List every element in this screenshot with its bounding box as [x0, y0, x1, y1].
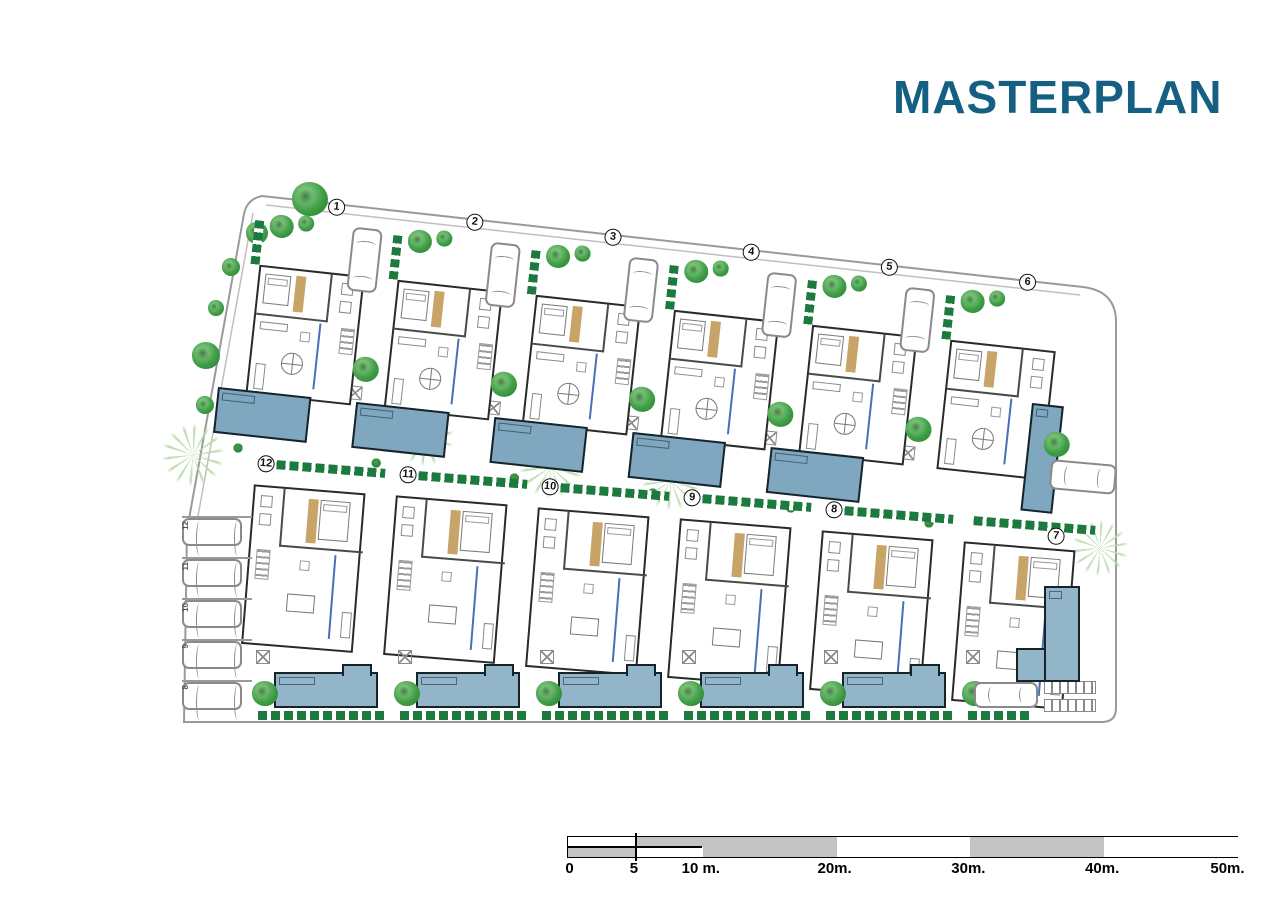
bath-fixture-icon: [753, 346, 766, 359]
dining-table-icon: [418, 367, 442, 391]
sofa-icon: [253, 363, 266, 390]
interior-wall: [326, 274, 333, 322]
hedge: [405, 471, 527, 490]
dining-table-icon: [971, 427, 995, 451]
terrace-grid-icon: [540, 650, 554, 664]
tree-icon: [536, 681, 562, 706]
plot-number-badge: 7: [1047, 527, 1065, 545]
terrace-grid-icon: [398, 650, 412, 664]
tree-icon: [407, 229, 433, 254]
bath-fixture-icon: [615, 331, 628, 344]
accent-wall: [312, 324, 321, 390]
bath-fixture-icon: [543, 536, 556, 549]
bath-fixture-icon: [544, 518, 557, 531]
scale-label: 50m.: [1210, 860, 1244, 877]
bath-fixture-icon: [1030, 376, 1043, 389]
furniture-icon: [990, 407, 1001, 418]
bed-icon: [677, 318, 706, 351]
dining-table-icon: [286, 593, 315, 613]
hedge: [826, 711, 952, 720]
tree-icon: [394, 681, 420, 706]
villa-plot: 12: [250, 458, 392, 722]
interior-wall: [279, 545, 363, 554]
car-icon: [182, 641, 242, 669]
tree-icon: [196, 396, 214, 414]
scale-bar-body: [567, 836, 1238, 858]
plot-number-badge: 9: [683, 489, 701, 507]
bed-icon: [401, 288, 430, 321]
accent-wall: [451, 339, 460, 405]
parking-bay-number: 9: [181, 644, 190, 648]
sofa-icon: [668, 408, 681, 435]
wardrobe-icon: [984, 351, 998, 388]
bottom-villa-row: 12 11: [250, 458, 1105, 722]
kitchen-counter-icon: [812, 381, 841, 392]
hedge: [547, 482, 669, 501]
stairs-icon: [891, 388, 908, 415]
sofa-icon: [624, 635, 636, 662]
accent-wall: [865, 384, 874, 450]
wardrobe-icon: [707, 321, 721, 358]
interior-wall: [421, 556, 505, 565]
interior-wall: [602, 305, 609, 353]
stairs-icon: [476, 343, 493, 370]
car-icon: [899, 287, 936, 354]
tree-icon: [208, 300, 224, 316]
stairs-icon: [964, 606, 980, 637]
bed-icon: [460, 511, 493, 553]
pergola-icon: [1044, 681, 1096, 694]
furniture-icon: [576, 362, 587, 373]
scale-label: 30m.: [951, 860, 985, 877]
stairs-icon: [822, 594, 838, 625]
tree-icon: [252, 681, 278, 706]
sofa-icon: [482, 623, 494, 650]
car-icon: [761, 272, 798, 339]
tree-icon: [850, 275, 868, 293]
terrace-grid-icon: [966, 650, 980, 664]
pool: [558, 672, 662, 708]
accent-wall: [727, 369, 736, 435]
interior-wall: [989, 546, 996, 604]
dining-table-icon: [428, 605, 457, 625]
bed-icon: [953, 348, 982, 381]
bed-icon: [539, 303, 568, 336]
tree-icon: [678, 681, 704, 706]
car-icon: [484, 242, 521, 309]
bed-icon: [886, 545, 919, 587]
bed-icon: [815, 333, 844, 366]
palm-tree-icon: [162, 424, 224, 486]
interior-wall: [847, 534, 854, 592]
accent-wall: [470, 566, 479, 650]
wardrobe-icon: [845, 336, 859, 373]
masterplan-page: MASTERPLAN 1: [0, 0, 1280, 904]
pool: [1044, 586, 1080, 682]
dining-table-icon: [712, 628, 741, 648]
interior-wall: [421, 500, 428, 558]
terrace-grid-icon: [824, 650, 838, 664]
accent-wall: [1003, 399, 1012, 465]
pool: [274, 672, 378, 708]
scale-label: 10 m.: [682, 860, 720, 877]
wardrobe-icon: [293, 276, 307, 313]
furniture-icon: [299, 560, 310, 571]
bed-icon: [744, 534, 777, 576]
tree-icon: [269, 214, 295, 239]
car-icon: [182, 518, 242, 546]
plot-number-badge: 11: [399, 466, 417, 484]
kitchen-counter-icon: [536, 351, 565, 362]
dining-table-icon: [556, 382, 580, 406]
wardrobe-icon: [431, 291, 445, 328]
stairs-icon: [396, 560, 412, 591]
scale-label: 20m.: [817, 860, 851, 877]
hedge: [689, 493, 811, 512]
bath-fixture-icon: [401, 524, 414, 537]
pool: [700, 672, 804, 708]
tree-icon: [683, 259, 709, 284]
interior-wall: [878, 335, 885, 383]
interior-wall: [464, 290, 471, 338]
villa-plot: 9: [676, 458, 818, 722]
terrace-grid-icon: [682, 650, 696, 664]
furniture-icon: [852, 392, 863, 403]
parking-bay-number: 11: [181, 562, 190, 570]
hedge: [973, 516, 1095, 535]
furniture-icon: [583, 583, 594, 594]
villa-plot: 8: [818, 458, 960, 722]
parking-bay-number: 8: [181, 685, 190, 689]
plot-number-badge: 10: [541, 477, 559, 495]
stairs-icon: [538, 572, 554, 603]
interior-wall: [705, 579, 789, 588]
car-icon: [623, 257, 660, 324]
terrace-grid-icon: [256, 650, 270, 664]
interior-wall: [279, 489, 286, 547]
parking-bay: 11: [182, 557, 252, 600]
bath-fixture-icon: [260, 495, 273, 508]
interior-wall: [1017, 350, 1024, 398]
tilted-plot-content: 12: [234, 458, 392, 669]
stairs-icon: [254, 549, 270, 580]
dining-table-icon: [854, 639, 883, 659]
scale-bar: 0510 m.20m.30m.40m.50m.: [565, 833, 1241, 881]
scale-segment: [836, 837, 971, 857]
sofa-icon: [806, 423, 819, 450]
accent-wall: [589, 354, 598, 420]
parking-bay: 9: [182, 639, 252, 682]
bath-fixture-icon: [969, 570, 982, 583]
bath-fixture-icon: [686, 529, 699, 542]
stairs-icon: [680, 583, 696, 614]
parking-bay-number: 10: [181, 603, 190, 612]
kitchen-counter-icon: [398, 336, 427, 347]
car-icon: [1049, 459, 1117, 495]
tree-icon: [574, 245, 592, 263]
hedge: [831, 505, 953, 524]
bath-fixture-icon: [685, 547, 698, 560]
furniture-icon: [438, 347, 449, 358]
kitchen-counter-icon: [260, 321, 289, 332]
interior-wall: [563, 567, 647, 576]
bath-fixture-icon: [1032, 358, 1045, 371]
car-icon: [346, 227, 383, 294]
pool: [842, 672, 946, 708]
parking-bay: 12: [182, 516, 252, 559]
bath-fixture-icon: [259, 513, 272, 526]
bed-icon: [318, 500, 351, 542]
car-icon: [182, 682, 242, 710]
pergola-icon: [1044, 699, 1096, 712]
house-floorplan: [383, 496, 507, 664]
interior-wall: [847, 590, 931, 599]
hedge: [968, 711, 1032, 720]
dining-table-icon: [694, 397, 718, 421]
tree-icon: [297, 215, 315, 233]
sofa-icon: [391, 378, 404, 405]
car-icon: [182, 600, 242, 628]
sofa-icon: [340, 612, 352, 639]
tree-icon: [712, 260, 730, 278]
stairs-icon: [753, 373, 770, 400]
stairs-icon: [338, 328, 355, 355]
furniture-icon: [1009, 617, 1020, 628]
sofa-icon: [529, 393, 542, 420]
bed-icon: [602, 523, 635, 565]
bath-fixture-icon: [339, 301, 352, 314]
parking-strip: 12 11 10 9 8: [182, 516, 252, 722]
accent-wall: [754, 589, 763, 673]
parking-bay: 10: [182, 598, 252, 641]
tree-icon: [545, 244, 571, 269]
car-icon: [182, 559, 242, 587]
tree-icon: [192, 342, 220, 369]
kitchen-counter-icon: [674, 366, 703, 377]
wardrobe-icon: [569, 306, 583, 343]
furniture-icon: [725, 595, 736, 606]
villa-plot: 7: [960, 458, 1102, 722]
bath-fixture-icon: [892, 361, 905, 374]
tilted-plot-content: 11: [376, 469, 534, 680]
scale-label: 0: [565, 860, 573, 877]
tree-icon: [820, 681, 846, 706]
wardrobe-icon: [873, 544, 886, 589]
bath-fixture-icon: [402, 506, 415, 519]
furniture-icon: [867, 606, 878, 617]
interior-wall: [705, 523, 712, 581]
bath-fixture-icon: [827, 559, 840, 572]
furniture-icon: [714, 377, 725, 388]
scale-segment: [702, 837, 837, 857]
hedge: [263, 459, 385, 478]
interior-wall: [563, 512, 570, 570]
tree-icon: [988, 290, 1006, 308]
accent-wall: [328, 555, 337, 639]
house-floorplan: [241, 484, 365, 652]
hedge: [542, 711, 668, 720]
pool: [416, 672, 520, 708]
dining-table-icon: [833, 412, 857, 436]
scale-bar-tick: [635, 833, 637, 861]
parking-bay-number: 12: [181, 521, 190, 530]
tree-icon: [222, 258, 240, 276]
bath-fixture-icon: [828, 541, 841, 554]
hedge: [684, 711, 810, 720]
car-icon: [974, 682, 1038, 708]
scale-label: 5: [630, 860, 638, 877]
hedge: [258, 711, 384, 720]
bed-icon: [262, 273, 291, 306]
dining-table-icon: [570, 616, 599, 636]
hedge: [400, 711, 526, 720]
plot-number-badge: 12: [257, 455, 275, 473]
tree-icon: [959, 289, 985, 314]
furniture-icon: [299, 332, 310, 343]
tree-icon: [821, 274, 847, 299]
villa-plot: 10: [534, 458, 676, 722]
plot-number-badge: 8: [825, 500, 843, 518]
page-title: MASTERPLAN: [893, 70, 1223, 124]
scale-segment: [969, 837, 1104, 857]
dining-table-icon: [280, 352, 304, 376]
bath-fixture-icon: [970, 552, 983, 565]
bath-fixture-icon: [477, 316, 490, 329]
stairs-icon: [615, 358, 632, 385]
scale-segment: [1103, 837, 1238, 857]
furniture-icon: [441, 572, 452, 583]
accent-wall: [612, 578, 621, 662]
interior-wall: [740, 320, 747, 368]
tree-icon: [436, 230, 454, 248]
scale-label: 40m.: [1085, 860, 1119, 877]
kitchen-counter-icon: [950, 396, 979, 407]
parking-bay: 8: [182, 680, 252, 723]
villa-plot: 11: [392, 458, 534, 722]
